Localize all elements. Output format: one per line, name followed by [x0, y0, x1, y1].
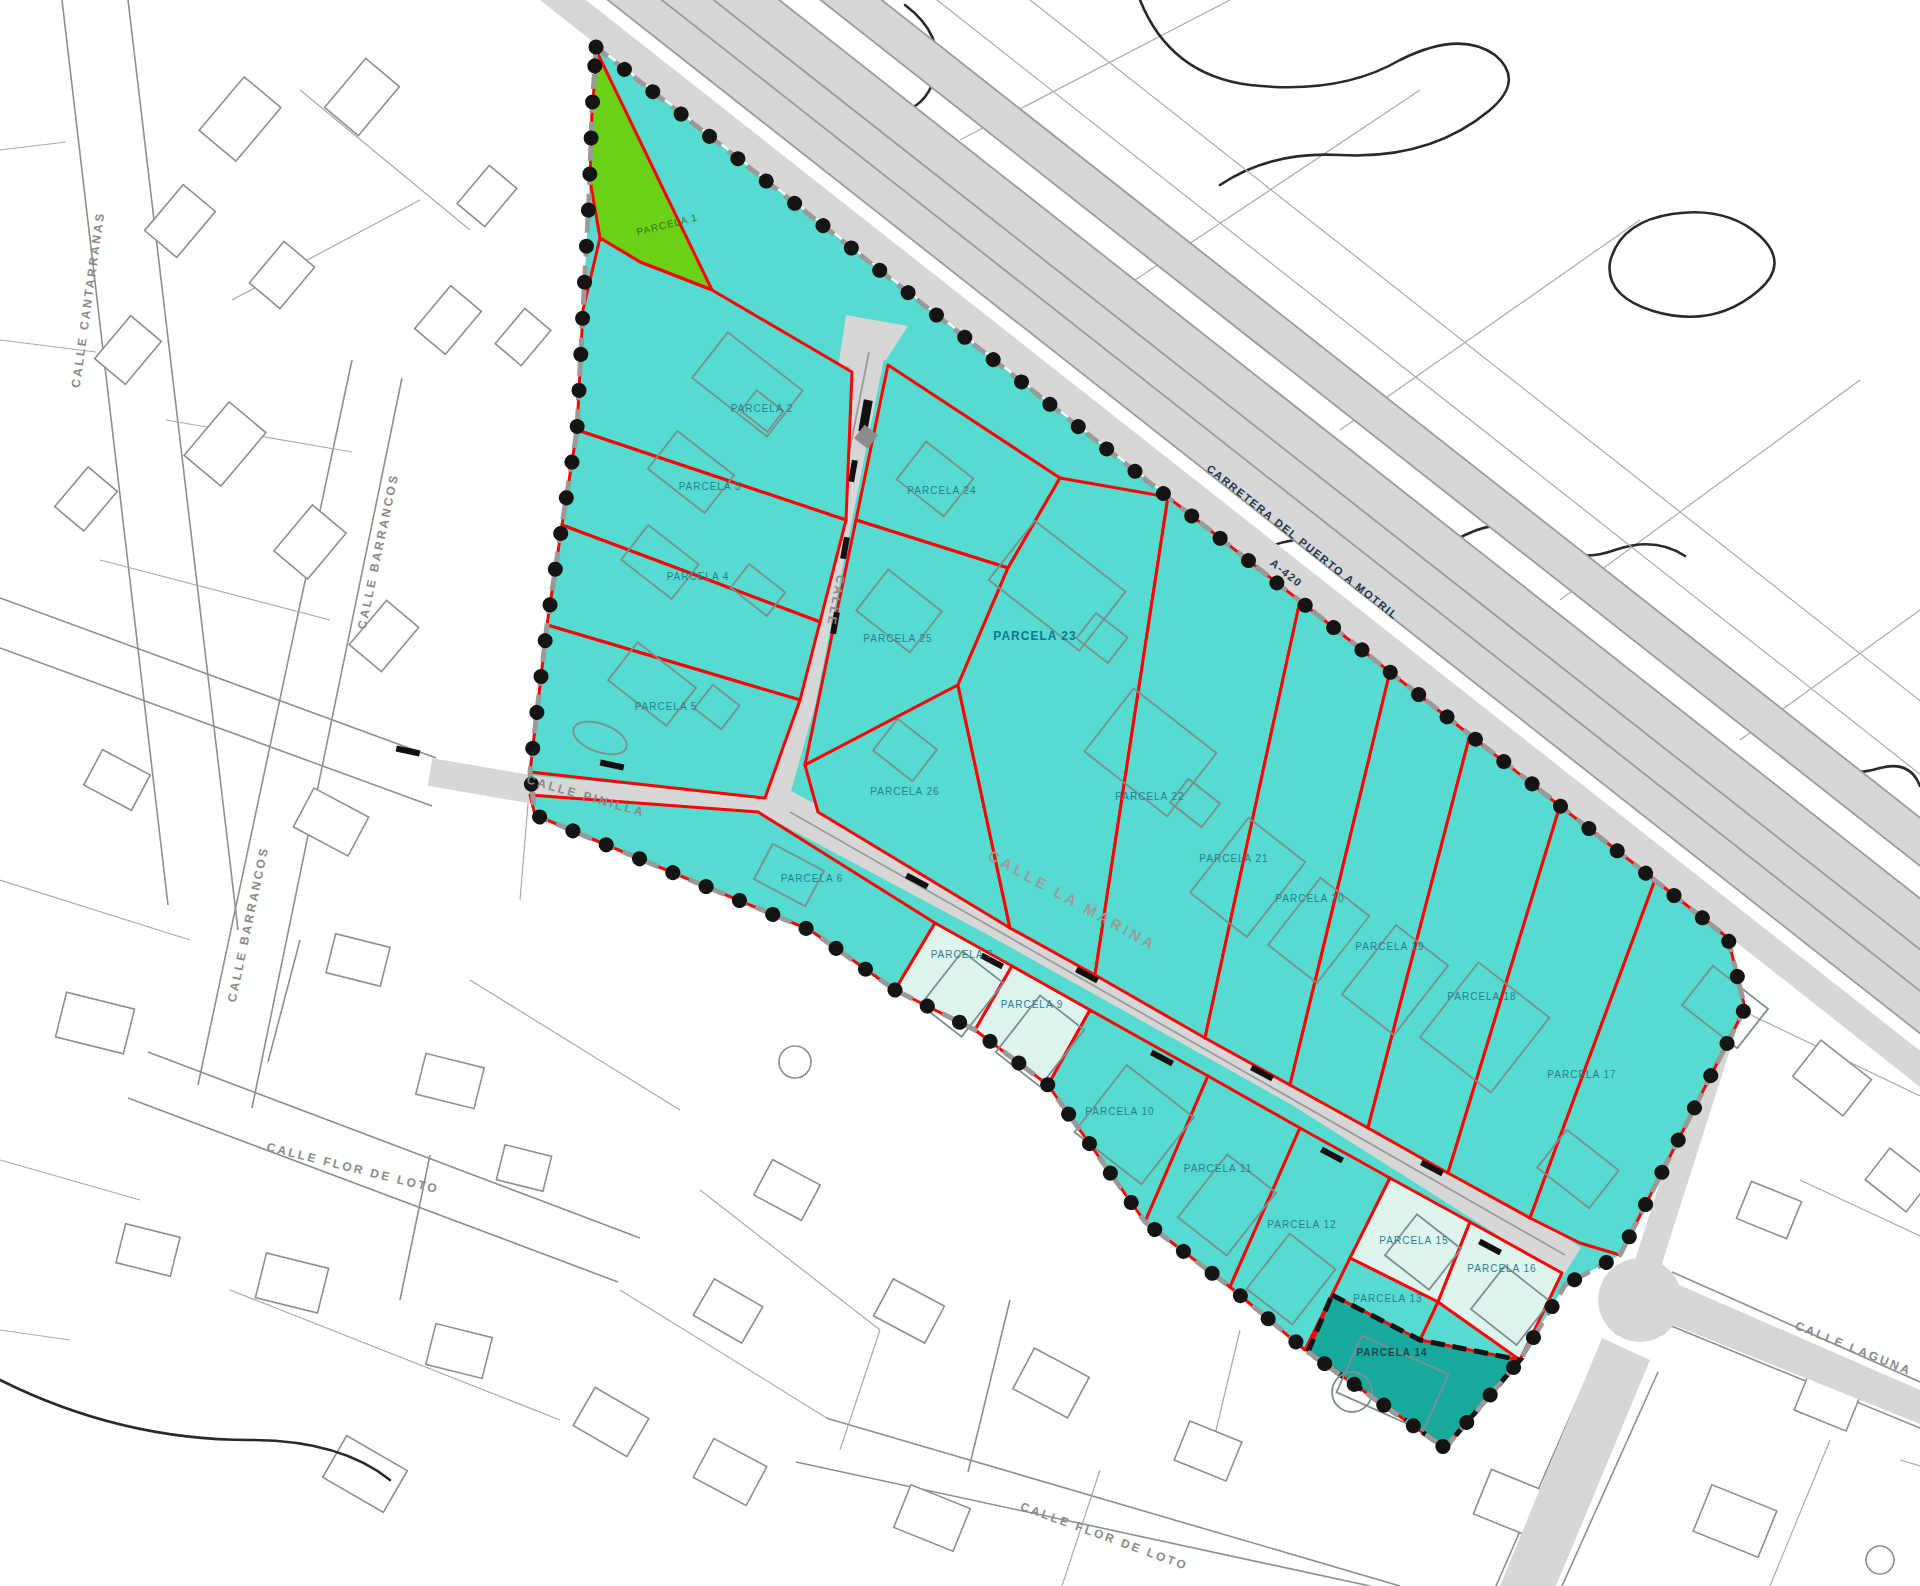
- parcel-label-2: PARCELA 2: [731, 403, 794, 414]
- parcel-label-18: PARCELA 18: [1447, 991, 1516, 1002]
- parcel-label-21: PARCELA 21: [1199, 853, 1268, 864]
- cadastral-map-page: CARRETERA DEL PUERTO A MOTRIL A-420 CALL…: [0, 0, 1920, 1586]
- parcel-label-15: PARCELA 15: [1379, 1235, 1448, 1246]
- parcel-label-14: PARCELA 14: [1356, 1347, 1427, 1358]
- parcel-label-4: PARCELA 4: [667, 571, 730, 582]
- parcel-label-13: PARCELA 13: [1353, 1293, 1422, 1304]
- parcel-label-5: PARCELA 5: [635, 701, 698, 712]
- parcel-label-23: PARCELA 23: [993, 629, 1076, 643]
- parcel-label-20: PARCELA 20: [1275, 893, 1344, 904]
- parcel-label-26: PARCELA 26: [870, 786, 939, 797]
- parcel-label-11: PARCELA 11: [1184, 1163, 1253, 1174]
- parcel-label-24: PARCELA 24: [907, 485, 976, 496]
- cadastral-map-canvas: CARRETERA DEL PUERTO A MOTRIL A-420 CALL…: [0, 0, 1920, 1586]
- parcel-label-25: PARCELA 25: [863, 633, 932, 644]
- parcel-label-12: PARCELA 12: [1267, 1219, 1336, 1230]
- parcel-label-19: PARCELA 19: [1355, 941, 1424, 952]
- parcel-label-10: PARCELA 10: [1085, 1106, 1154, 1117]
- street-label-flor-de-loto-west: CALLE FLOR DE LOTO: [265, 1140, 441, 1197]
- parcel-label-22: PARCELA 22: [1115, 791, 1184, 802]
- parcel-label-6: PARCELA 6: [781, 873, 844, 884]
- parcel-label-17: PARCELA 17: [1547, 1069, 1616, 1080]
- street-label-flor-de-loto-south: CALLE FLOR DE LOTO: [1019, 1499, 1191, 1573]
- parcel-label-3: PARCELA 3: [679, 481, 742, 492]
- parcel-label-16: PARCELA 16: [1467, 1263, 1536, 1274]
- parcel-label-9: PARCELA 9: [1001, 999, 1064, 1010]
- road-south-exit: [1500, 1338, 1650, 1586]
- parcel-label-7: PARCELA 7: [931, 949, 994, 960]
